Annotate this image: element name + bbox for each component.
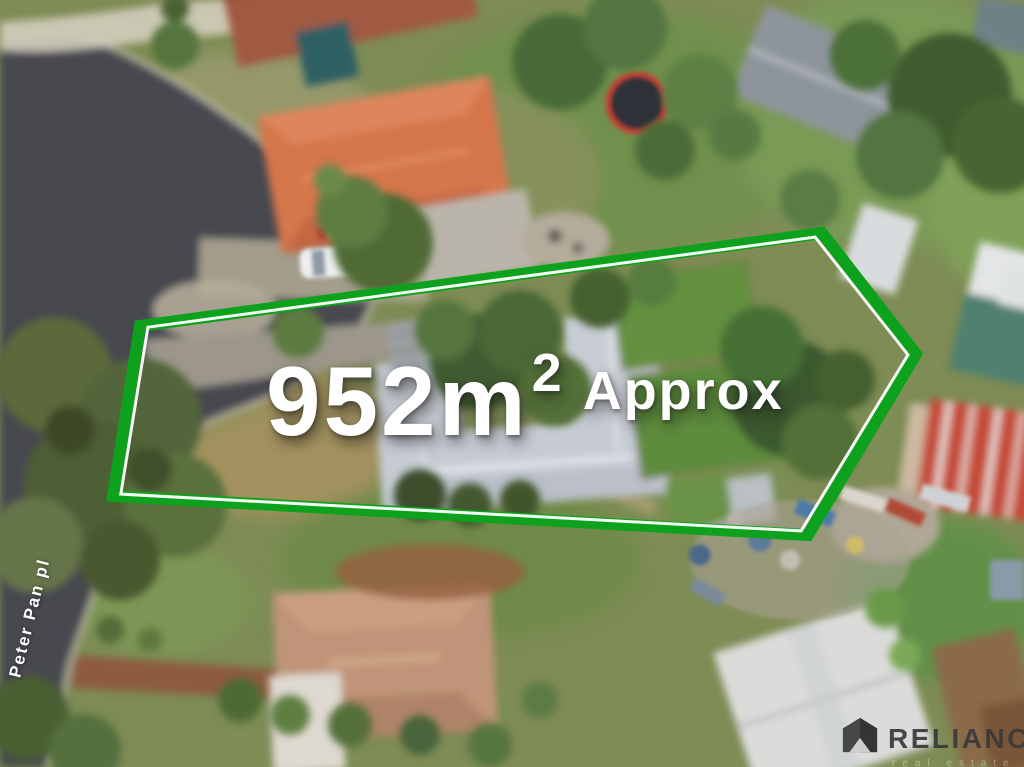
watermark-brand: RELIANCE	[888, 725, 1024, 753]
area-qualifier: Approx	[583, 361, 784, 421]
patio-paving	[520, 212, 610, 268]
area-value: 952m	[266, 346, 529, 456]
area-label: 952m2Approx	[266, 346, 784, 450]
reliance-house-icon	[841, 716, 879, 754]
teal-pool-shed	[295, 21, 359, 87]
watermark-text: RELIANCE real estate	[888, 716, 1024, 767]
area-superscript: 2	[532, 343, 565, 403]
screenshot-root: 952m2Approx Peter Pan pl RELIANCE real e…	[0, 0, 1024, 767]
watermark-tagline: real estate	[888, 758, 1024, 767]
watermark: RELIANCE real estate	[841, 716, 1024, 767]
dirt-patch	[335, 544, 525, 600]
